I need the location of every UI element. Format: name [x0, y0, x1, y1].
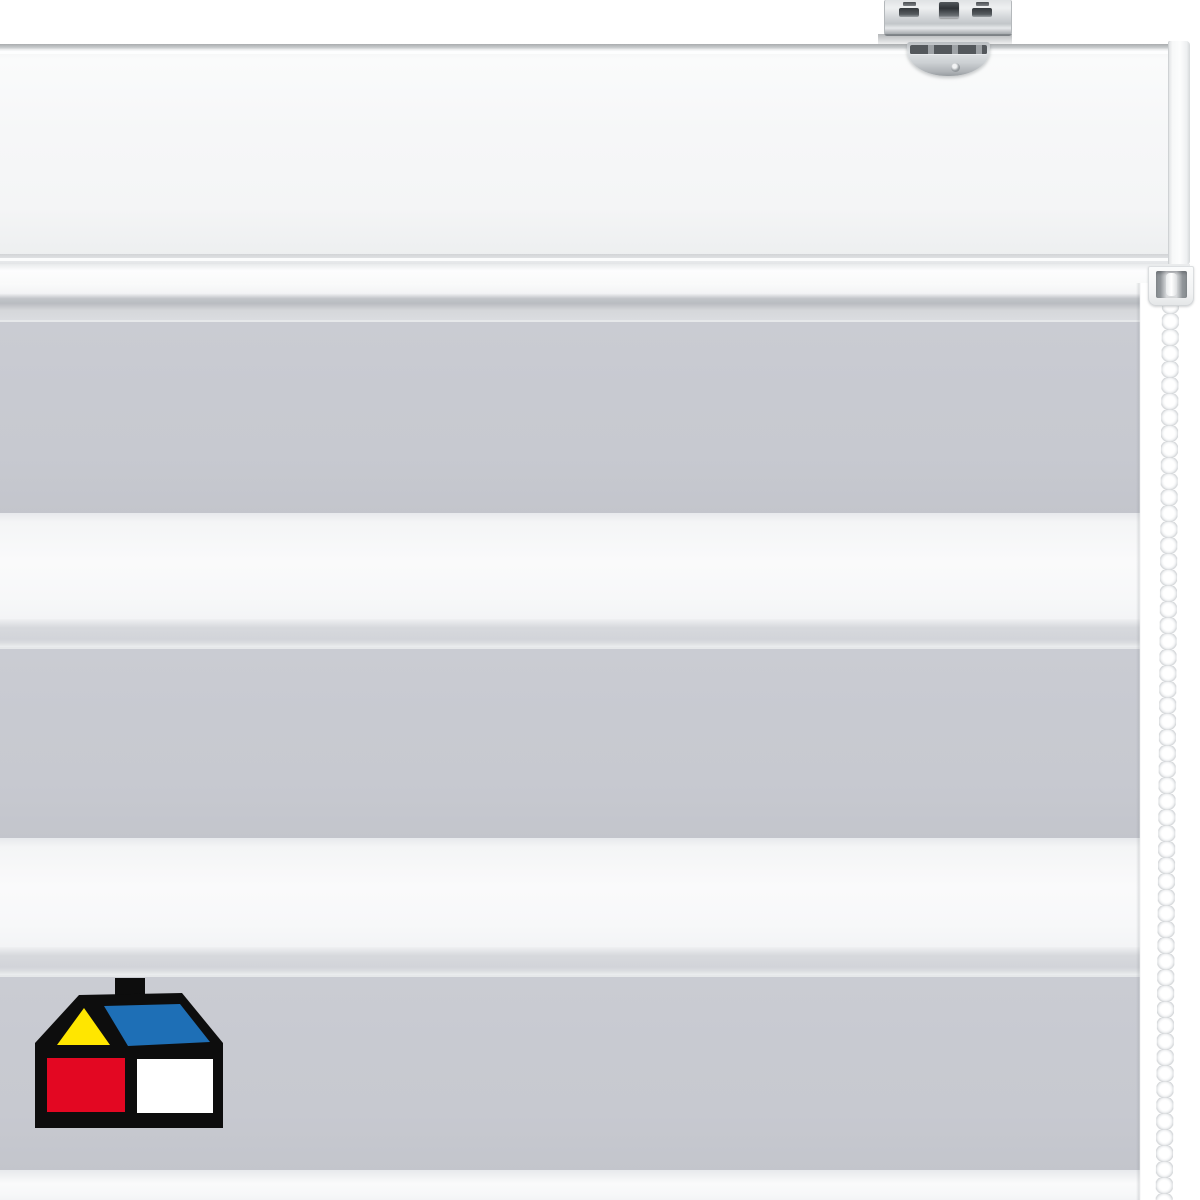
headrail-cassette	[0, 44, 1168, 264]
chain-clutch-housing	[1148, 266, 1194, 306]
product-photo	[0, 0, 1200, 1200]
fabric-stripe-gray	[0, 647, 1140, 840]
fabric-stripe-white	[0, 513, 1140, 619]
headrail-groove-highlight	[0, 258, 1168, 261]
chain-guide	[1166, 273, 1177, 296]
bead-chain	[1156, 298, 1179, 1200]
bracket-clip-screw-hole	[951, 63, 960, 72]
headrail-highlight	[0, 51, 1168, 54]
bracket-slot-left	[899, 8, 919, 17]
fabric-stripe-sheer	[0, 619, 1140, 647]
bracket-clip-slot	[910, 45, 987, 55]
chain-clutch-wheel	[1156, 271, 1187, 298]
fabric-stripe-white	[0, 1170, 1140, 1200]
headrail-end-cap	[1168, 41, 1190, 265]
fabric-right-edge-shadow	[1136, 283, 1141, 1200]
bracket-center-tab	[939, 2, 959, 18]
logo-red-block	[47, 1058, 125, 1112]
headrail-top-edge	[0, 44, 1168, 50]
headrail-bottom-ledge	[0, 264, 1190, 283]
fabric-stripe-white	[0, 838, 1140, 947]
fabric-stripe-roll	[0, 283, 1140, 320]
house-logo	[33, 977, 225, 1129]
bracket-screw-mark-right	[976, 2, 989, 6]
fabric-stripe-sheer	[0, 947, 1140, 975]
logo-white-block	[137, 1059, 213, 1113]
bracket-screw-mark-left	[903, 2, 916, 6]
fabric-stripe-gray	[0, 320, 1140, 515]
bracket-slot-right	[972, 8, 992, 17]
mounting-bracket-plate	[884, 0, 1012, 36]
